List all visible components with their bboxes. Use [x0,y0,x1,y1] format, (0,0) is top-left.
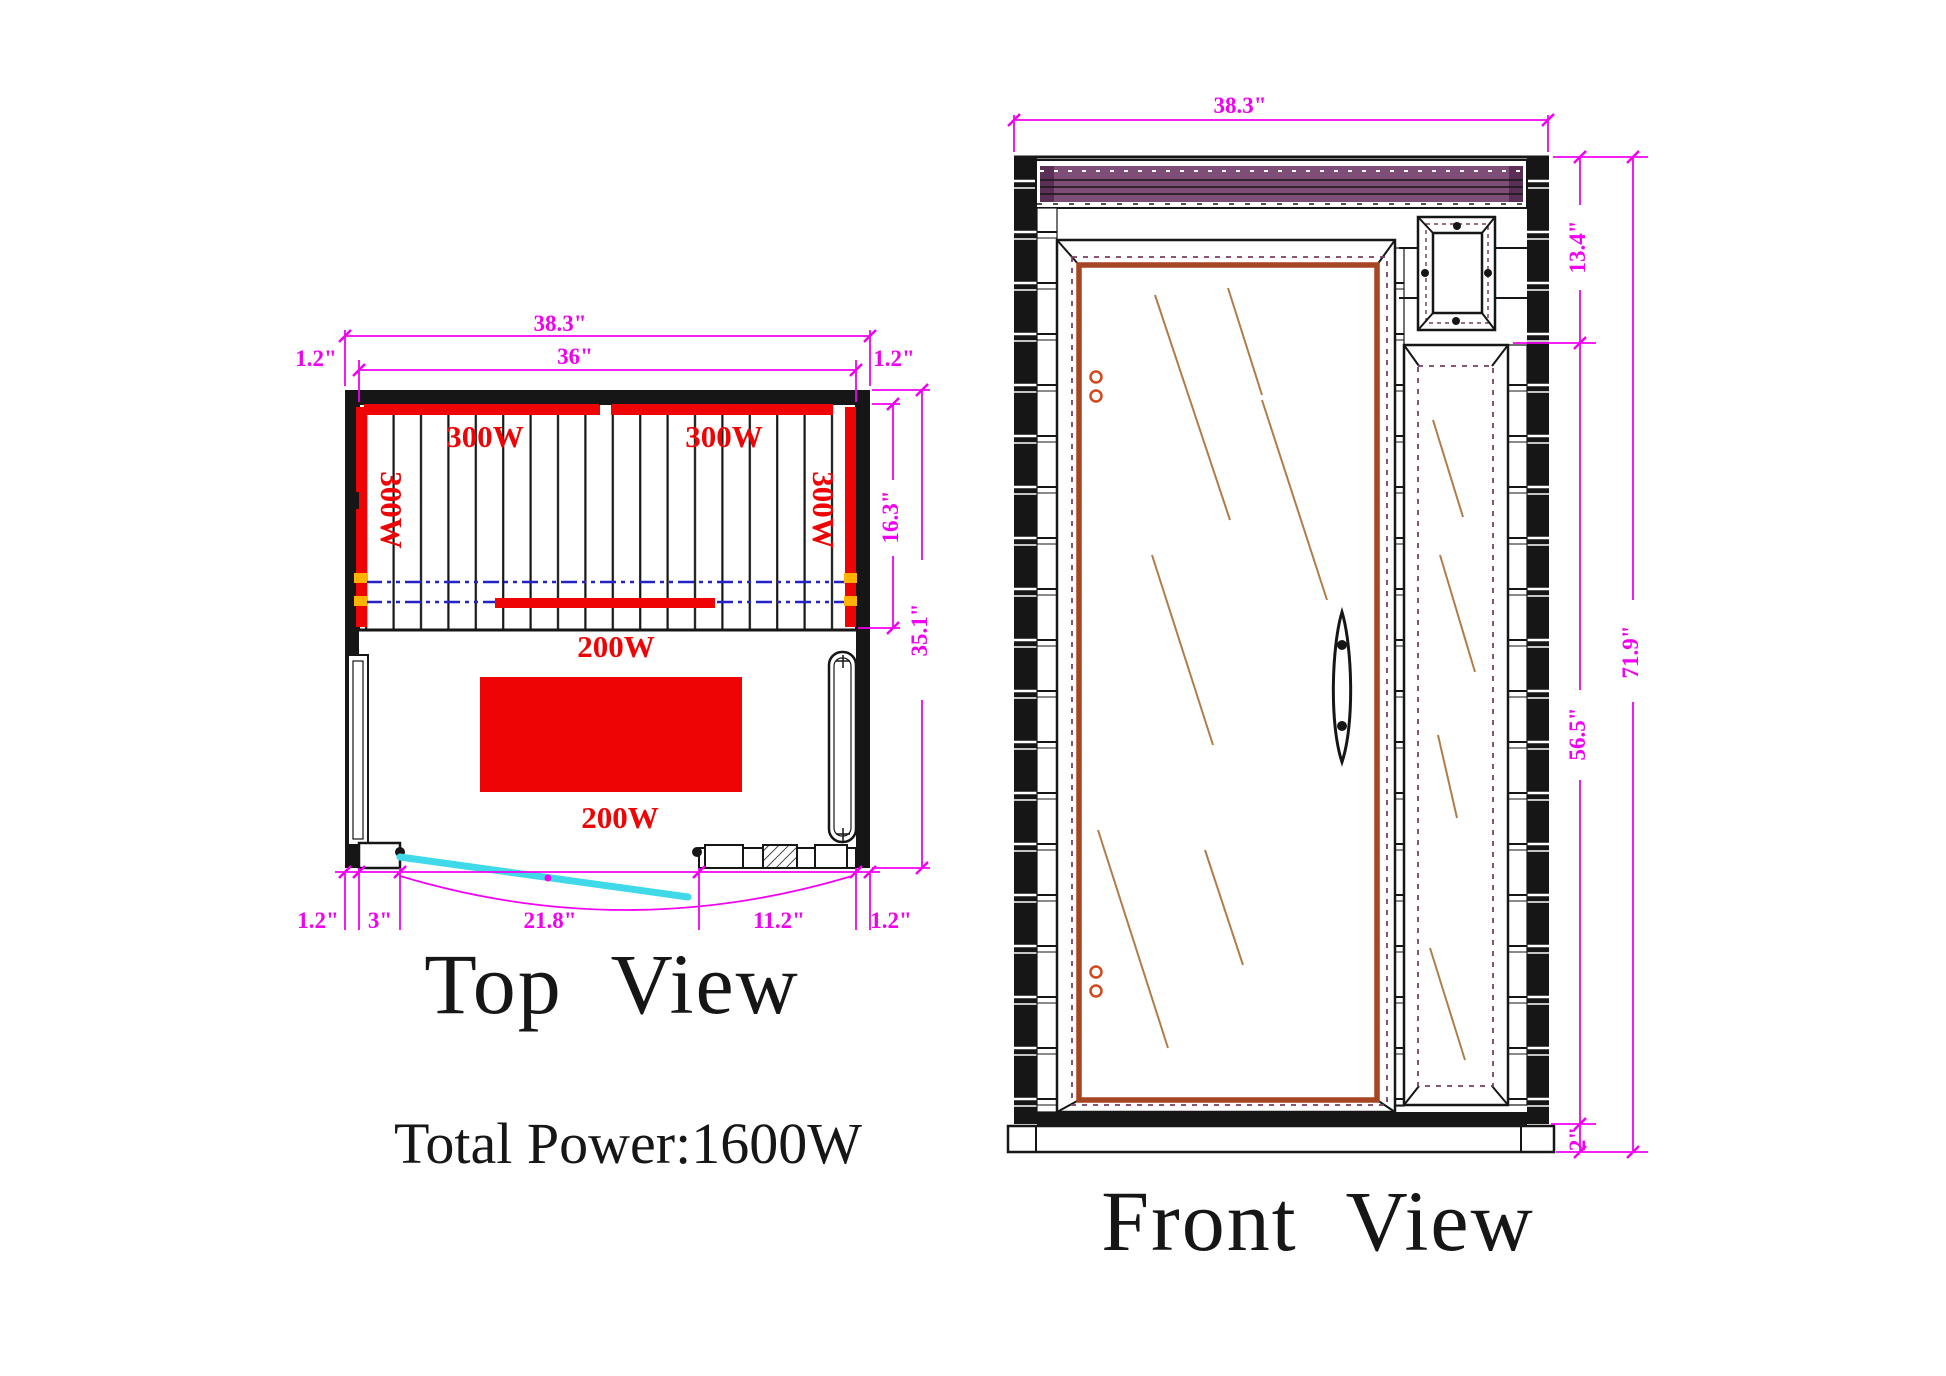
left-corner-post [348,655,368,845]
front-right-wall [1527,157,1549,1124]
glass-door [1057,240,1395,1112]
back-heater-right-bar [611,404,833,415]
left-plank-strip [1037,208,1057,1112]
door-handle [1333,612,1350,762]
dim-door-opening: 21.8" [523,908,576,933]
dim-front-overall-width: 38.3" [1213,93,1266,118]
dim-top-right-wall: 1.2" [873,346,915,371]
dim-top-interior-width: 36" [557,344,593,369]
top-view-slat-zone [359,404,856,630]
top-view-drawing: 38.3" 36" 1.2" 1.2" 16.3" 35.1" 1.2" 3" … [295,311,932,1176]
side-heater-left-bar [356,407,367,627]
heater-label-back-right: 300W [685,419,763,454]
dim-top-overall-width: 38.3" [533,311,586,336]
sauna-blueprint-svg: 38.3" 36" 1.2" 1.2" 16.3" 35.1" 1.2" 3" … [0,0,1946,1376]
side-heater-right-mark2 [844,596,857,606]
heater-clip-center [599,392,612,405]
vent-block [763,845,797,868]
heater-label-mid: 200W [577,629,655,664]
side-heater-right-mark [844,573,857,583]
mid-heater-bar [495,598,715,608]
heater-label-back-left: 300W [446,419,524,454]
bottom-rail [1037,1112,1527,1126]
heater-clip-right [802,392,815,404]
right-wall-clip [857,492,870,509]
heater-label-side-right: 300W [806,471,841,549]
dim-top-section-height: 13.4" [1565,220,1590,273]
bench-heater-block [480,677,742,792]
dim-interior-depth: 35.1" [907,603,932,656]
side-heater-left-mark [354,573,367,583]
right-grab-bar [829,652,856,842]
front-left-wall [1014,157,1037,1124]
control-panel [1399,217,1527,330]
heater-label-side-left: 300W [374,471,409,549]
roof-vent-bar [1036,160,1527,208]
heater-label-bench: 200W [581,800,659,835]
dim-door-section-height: 56.5" [1565,707,1590,760]
side-heater-right-bar [845,407,856,627]
dim-heater-zone-depth: 16.3" [878,490,903,543]
dim-overall-height: 71.9" [1618,625,1643,678]
right-plank-strip [1508,345,1527,1105]
back-heater-left-bar [364,404,600,415]
front-view-title: Front View [1101,1173,1534,1269]
dim-bottom-left-wall: 1.2" [297,908,339,933]
side-glass-panel [1404,345,1508,1105]
dim-front-panel: 11.2" [753,908,805,933]
side-heater-left-mark2 [354,596,367,606]
base-platform [1008,1126,1554,1152]
dim-door-jamb: 3" [368,908,392,933]
door-pivot-right [692,847,702,857]
left-wall-clip [346,492,359,509]
top-view-title: Top View [424,936,800,1032]
dim-top-left-wall: 1.2" [295,346,337,371]
sauna-blueprint-canvas: 38.3" 36" 1.2" 1.2" 16.3" 35.1" 1.2" 3" … [0,0,1946,1376]
total-power-label: Total Power:1600W [394,1111,862,1176]
dim-bottom-right-wall: 1.2" [870,908,912,933]
front-view-drawing: 38.3" 13.4" 56.5" 2" 71.9" Front View [1008,93,1648,1269]
dim-base-height: 2" [1565,1127,1590,1151]
mid-plank-strip [1395,248,1404,1106]
